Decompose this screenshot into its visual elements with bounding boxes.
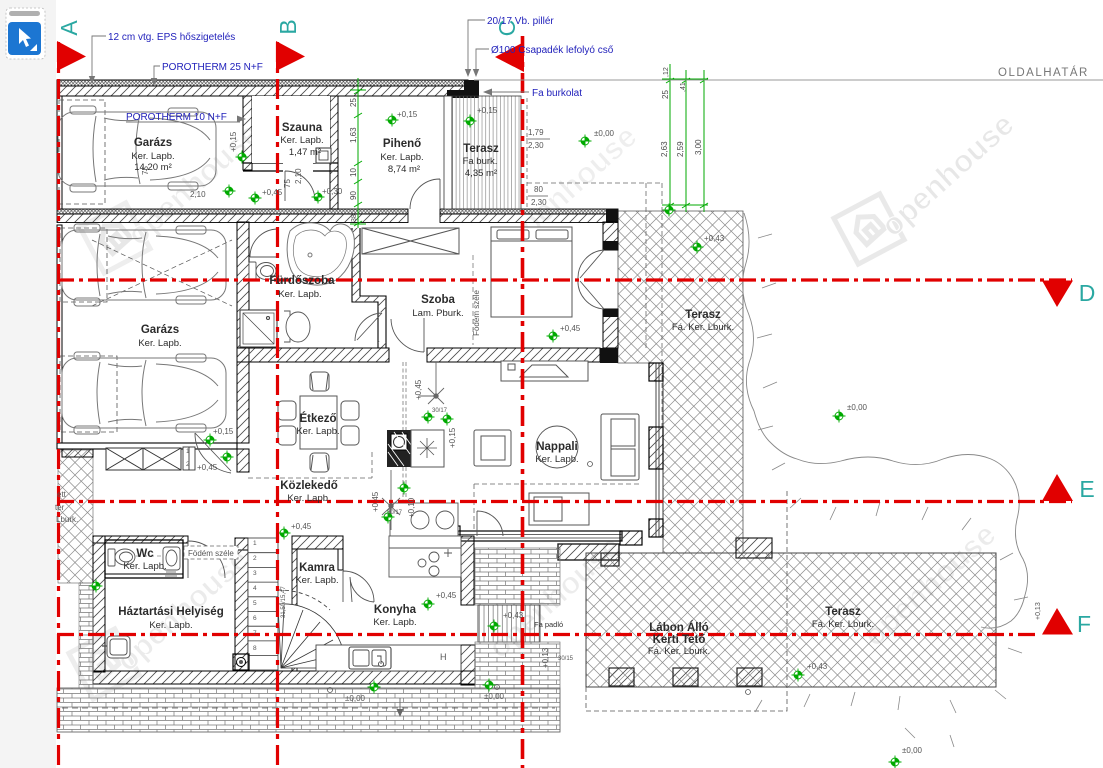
svg-text:Födém széle: Födém széle	[472, 290, 481, 336]
svg-text:1,79: 1,79	[528, 128, 544, 137]
svg-text:Ker. Lapb.: Ker. Lapb.	[535, 454, 578, 465]
svg-text:Terasz: Terasz	[825, 606, 861, 618]
svg-text:+0,15: +0,15	[397, 110, 418, 119]
svg-text:31,50/15,47: 31,50/15,47	[281, 586, 287, 618]
svg-text:Fürdőszoba: Fürdőszoba	[269, 275, 335, 287]
svg-text:+0,45: +0,45	[291, 522, 312, 531]
svg-text:+0,30: +0,30	[322, 187, 343, 196]
svg-text:+0,45: +0,45	[197, 463, 218, 472]
svg-text:30/17: 30/17	[432, 408, 448, 414]
svg-text:Ker. Lapb.: Ker. Lapb.	[149, 620, 192, 631]
svg-text:ett: ett	[57, 490, 67, 499]
svg-text:Ker. Lapb.: Ker. Lapb.	[380, 152, 423, 163]
svg-text:Wc: Wc	[136, 548, 154, 560]
svg-text:±0,00: ±0,00	[847, 403, 868, 412]
svg-text:POROTHERM 25 N+F: POROTHERM 25 N+F	[162, 62, 263, 73]
svg-text:Lam. Pburk.: Lam. Pburk.	[412, 308, 463, 319]
svg-text:Nappali: Nappali	[536, 441, 578, 453]
svg-text:±0,00: ±0,00	[345, 694, 366, 703]
svg-text:B: B	[275, 19, 301, 34]
svg-text:+0,45: +0,45	[436, 591, 457, 600]
svg-text:Ker. Lapb.: Ker. Lapb.	[280, 135, 323, 146]
svg-text:5: 5	[253, 600, 257, 607]
svg-text:6: 6	[253, 615, 257, 622]
svg-text:F: F	[1077, 611, 1091, 637]
svg-text:+0,45: +0,45	[414, 379, 423, 400]
svg-text:Háztartási Helyiség: Háztartási Helyiség	[118, 606, 223, 618]
svg-text:25: 25	[349, 98, 358, 107]
svg-text:90: 90	[349, 191, 358, 200]
svg-text:+0,15: +0,15	[477, 106, 498, 115]
svg-text:+0,45: +0,45	[371, 491, 380, 512]
svg-text:±0,00: ±0,00	[484, 692, 505, 701]
svg-text:E: E	[1079, 476, 1094, 502]
svg-text:12 cm vtg. EPS hőszigetelés: 12 cm vtg. EPS hőszigetelés	[108, 32, 235, 43]
svg-text:Szauna: Szauna	[282, 122, 323, 134]
svg-text:Kerti Tető: Kerti Tető	[653, 634, 706, 646]
svg-text:OLDALHATÁR: OLDALHATÁR	[998, 66, 1089, 79]
svg-text:3,00: 3,00	[694, 139, 703, 155]
svg-text:+0,43: +0,43	[807, 662, 828, 671]
svg-text:30/17: 30/17	[387, 510, 403, 516]
svg-text:8: 8	[253, 645, 257, 652]
svg-text:2,30: 2,30	[528, 141, 544, 150]
svg-text:+0,15: +0,15	[448, 427, 457, 448]
svg-text:Ker. Lapb.: Ker. Lapb.	[123, 561, 166, 572]
svg-text:Ker. Lapb.: Ker. Lapb.	[373, 617, 416, 628]
svg-text:10: 10	[349, 168, 358, 177]
svg-text:Ker. Lapb.: Ker. Lapb.	[295, 575, 338, 586]
svg-text:Szoba: Szoba	[421, 294, 455, 306]
svg-text:Pihenő: Pihenő	[383, 138, 421, 150]
svg-text:,12: ,12	[663, 67, 670, 77]
svg-text:1: 1	[186, 448, 190, 455]
svg-text:25: 25	[661, 90, 670, 99]
svg-text:Garázs: Garázs	[141, 324, 179, 336]
svg-text:±0,00: ±0,00	[902, 746, 923, 755]
svg-text:2,10: 2,10	[190, 190, 206, 199]
svg-text:2,10: 2,10	[294, 168, 303, 184]
svg-text:4,35 m²: 4,35 m²	[465, 168, 497, 179]
svg-text:+0,43: +0,43	[704, 234, 725, 243]
svg-text:2,30: 2,30	[531, 198, 547, 207]
svg-text:Fa burk.: Fa burk.	[463, 156, 498, 167]
svg-text:Ker. Lapb.: Ker. Lapb.	[131, 151, 174, 162]
svg-text:Étkező: Étkező	[299, 412, 336, 425]
svg-text:H: H	[440, 652, 447, 662]
svg-text:D: D	[1079, 280, 1096, 306]
svg-text:Terasz: Terasz	[463, 143, 499, 155]
svg-text:75: 75	[141, 166, 150, 175]
svg-text:2: 2	[253, 555, 257, 562]
svg-text:+0,15: +0,15	[229, 131, 238, 152]
svg-text:+0,43: +0,43	[503, 611, 524, 620]
svg-text:Fá. Ker. Lburk.: Fá. Ker. Lburk.	[812, 619, 874, 630]
svg-text:75: 75	[283, 179, 292, 188]
svg-text:4: 4	[253, 585, 257, 592]
svg-text:Födém széle: Födém széle	[188, 549, 234, 558]
svg-text:14,20 m²: 14,20 m²	[134, 162, 172, 173]
svg-text:Fa burkolat: Fa burkolat	[532, 88, 582, 99]
svg-text:20/17 Vb. pillér: 20/17 Vb. pillér	[487, 16, 554, 27]
svg-text:3: 3	[253, 570, 257, 577]
svg-text:Fá. Ker. Lburk.: Fá. Ker. Lburk.	[672, 322, 734, 333]
svg-text:1: 1	[253, 540, 257, 547]
svg-text:,41: ,41	[680, 82, 687, 92]
svg-text:Fá. Ker. Lburk.: Fá. Ker. Lburk.	[648, 646, 710, 657]
svg-text:2,63: 2,63	[660, 141, 669, 157]
svg-text:Ker. Lapb.: Ker. Lapb.	[278, 289, 321, 300]
svg-text:Közlekedő: Közlekedő	[280, 480, 338, 492]
svg-text:Lburk.: Lburk.	[56, 515, 78, 524]
svg-text:Konyha: Konyha	[374, 604, 417, 616]
svg-text:POROTHERM 10 N+F: POROTHERM 10 N+F	[126, 112, 227, 123]
svg-text:+0,45: +0,45	[560, 324, 581, 333]
svg-text:A: A	[56, 20, 82, 36]
svg-text:Terasz: Terasz	[685, 309, 721, 321]
svg-text:Garázs: Garázs	[134, 137, 172, 149]
svg-text:30/15: 30/15	[558, 656, 574, 662]
svg-text:Ø100 Csapadék lefolyó cső: Ø100 Csapadék lefolyó cső	[491, 45, 614, 56]
svg-text:+0,45: +0,45	[262, 188, 283, 197]
svg-text:Lábon Álló: Lábon Álló	[649, 621, 708, 634]
svg-text:1,63: 1,63	[349, 127, 358, 143]
svg-text:Kamra: Kamra	[299, 562, 335, 574]
svg-text:Ker. Lapb.: Ker. Lapb.	[138, 338, 181, 349]
svg-text:2: 2	[186, 461, 190, 468]
svg-text:8,74 m²: 8,74 m²	[388, 164, 420, 175]
svg-text:+0,15: +0,15	[213, 427, 234, 436]
svg-text:7: 7	[253, 630, 257, 637]
svg-text:ter: ter	[55, 503, 65, 512]
svg-text:±0,00: ±0,00	[594, 129, 615, 138]
svg-text:38: 38	[351, 214, 358, 222]
svg-text:+0,10: +0,10	[407, 497, 416, 518]
svg-text:+0,13: +0,13	[1035, 602, 1042, 620]
svg-text:+0,13: +0,13	[541, 647, 550, 668]
svg-text:Ker. Lapb.: Ker. Lapb.	[296, 426, 339, 437]
svg-text:2,59: 2,59	[676, 141, 685, 157]
svg-text:Fa padló: Fa padló	[534, 620, 563, 629]
svg-text:Ker. Lapb.: Ker. Lapb.	[287, 493, 330, 504]
svg-text:80: 80	[534, 185, 543, 194]
svg-text:1,47 m²: 1,47 m²	[289, 147, 321, 158]
